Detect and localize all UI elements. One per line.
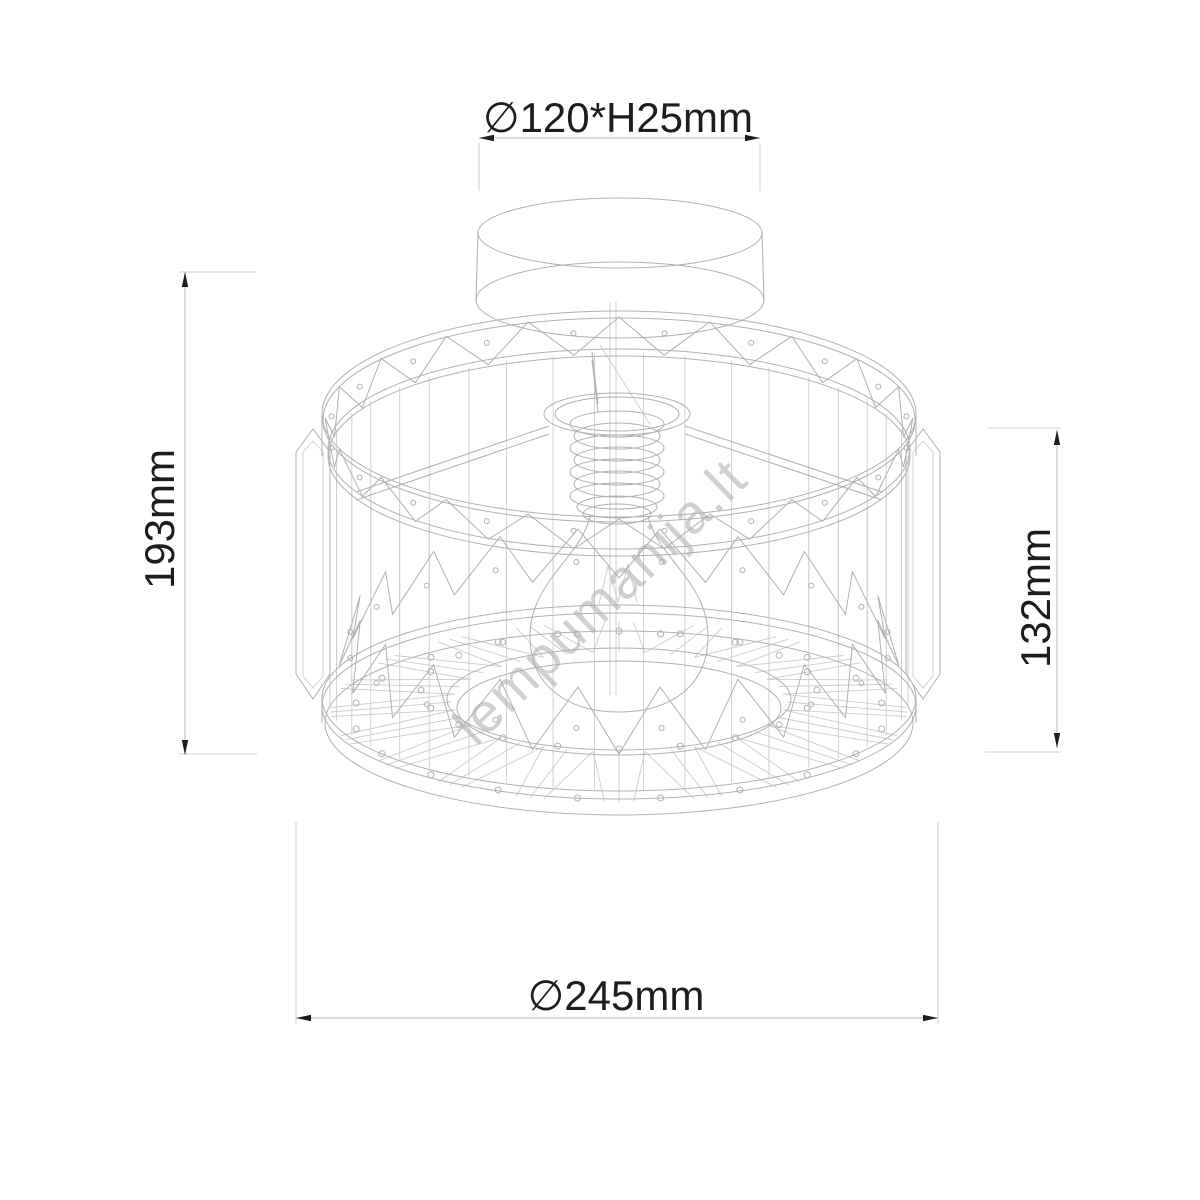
dimension-overall-height-label: 193mm (139, 449, 181, 589)
dimension-shade-diameter-label: ∅245mm (528, 975, 705, 1017)
dimension-shade-height-label: 132mm (1015, 528, 1057, 668)
technical-drawing: ∅120*H25mm 193mm 132mm ∅245mm lempumanij… (0, 0, 1200, 1200)
dimension-canopy-label: ∅120*H25mm (483, 97, 753, 139)
